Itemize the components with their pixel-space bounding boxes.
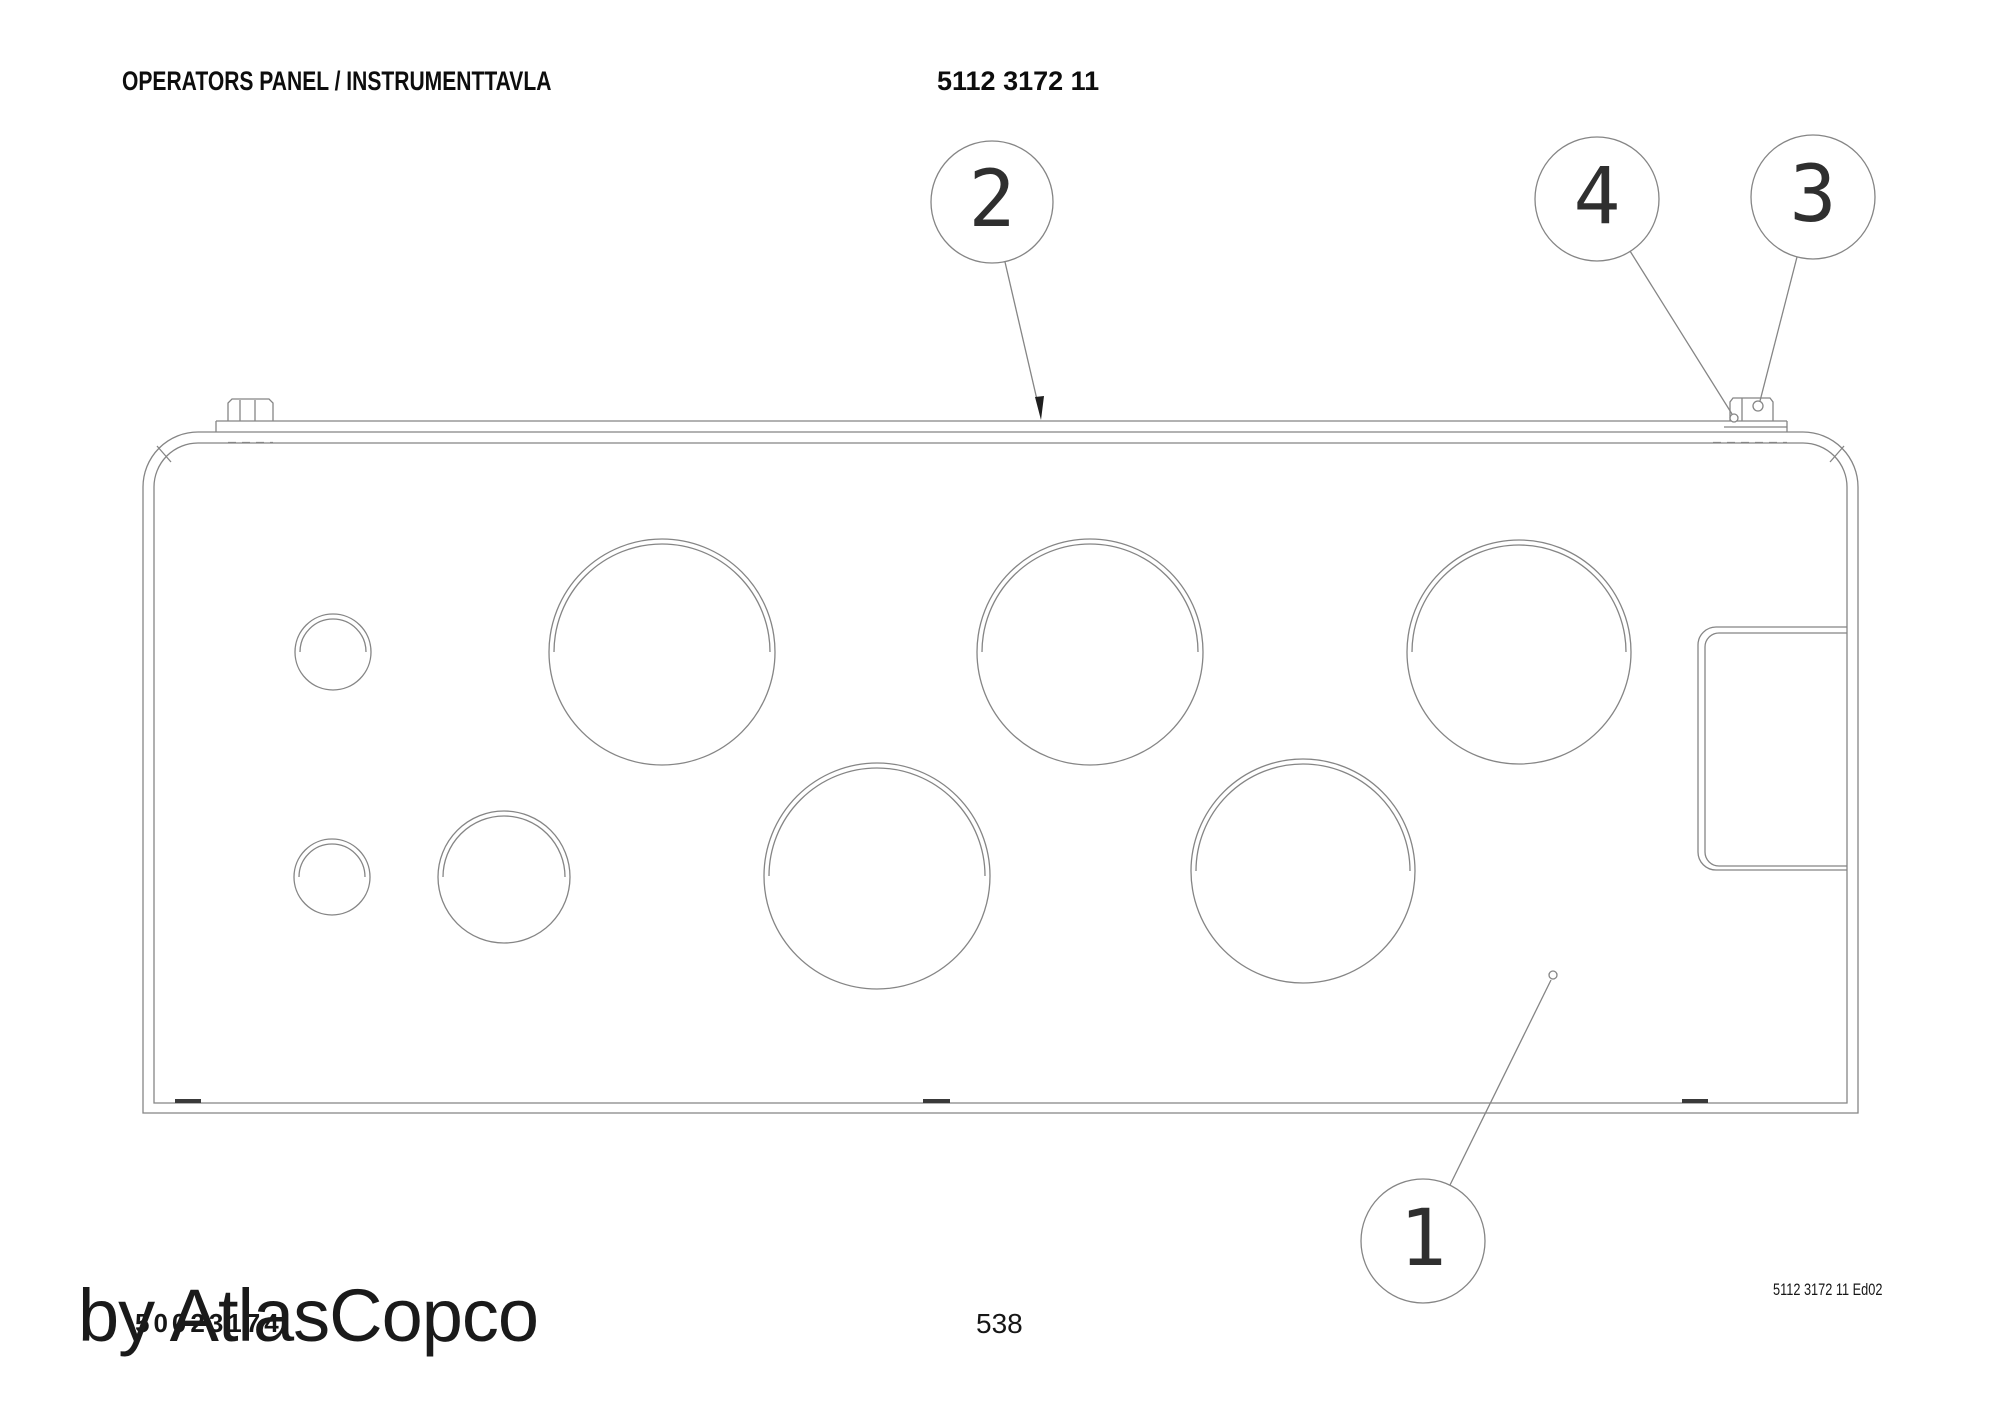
catalog-page: { "page": { "title": "OPERATORS PANEL / … — [0, 0, 2000, 1414]
panel-inner-line — [154, 443, 1847, 1103]
part-number-text: 5112 3172 11 — [937, 66, 1099, 96]
hole-small-bottom-left — [294, 839, 370, 915]
hole-large-bottom-1 — [764, 763, 990, 989]
leader-line-callout-4 — [1630, 251, 1732, 414]
edition-reference-text: 5112 3172 11 Ed02 — [1773, 1281, 1882, 1298]
hole-large-top-3 — [1407, 540, 1631, 764]
callout-2-label: 2 — [930, 138, 1054, 262]
rect-cutout-inner — [1705, 633, 1847, 866]
callout-3-label: 3 — [1751, 133, 1875, 257]
hole-large-top-1 — [549, 539, 775, 765]
leader-line-callout-3 — [1760, 257, 1797, 401]
leader-dot-callout-1 — [1549, 971, 1557, 979]
atlas-copco-watermark: by AtlasCopco — [78, 1279, 538, 1353]
hole-large-bottom-2 — [1191, 759, 1415, 983]
hole-small-top-left — [295, 614, 371, 690]
mounting-rail — [216, 421, 1787, 432]
edition-reference: 5112 3172 11 Ed02 — [1773, 1281, 1919, 1298]
bottom-dash-center — [923, 1099, 950, 1103]
callout-1-label: 1 — [1361, 1177, 1485, 1301]
part-number: 5112 3172 11 — [937, 68, 1099, 95]
hole-large-top-2 — [977, 539, 1203, 765]
callout-4-label: 4 — [1535, 135, 1659, 259]
bottom-dash-left — [175, 1099, 201, 1103]
panel-outline — [143, 432, 1858, 1113]
leader-arrowhead — [1035, 396, 1044, 420]
hole-medium-bottom — [438, 811, 570, 943]
page-title-text: OPERATORS PANEL / INSTRUMENTTAVLA — [122, 68, 551, 95]
leader-dot-callout-4 — [1730, 414, 1738, 422]
rect-cutout-outer — [1698, 627, 1847, 870]
bottom-dash-right — [1682, 1099, 1708, 1103]
tab-screw-hole — [1753, 401, 1763, 411]
page-number: 538 — [976, 1310, 1023, 1338]
leader-line-callout-1 — [1450, 980, 1551, 1185]
leader-line-callout-2 — [1005, 262, 1038, 404]
page-title: OPERATORS PANEL / INSTRUMENTTAVLA — [122, 68, 673, 95]
left-mounting-tab — [228, 399, 273, 421]
